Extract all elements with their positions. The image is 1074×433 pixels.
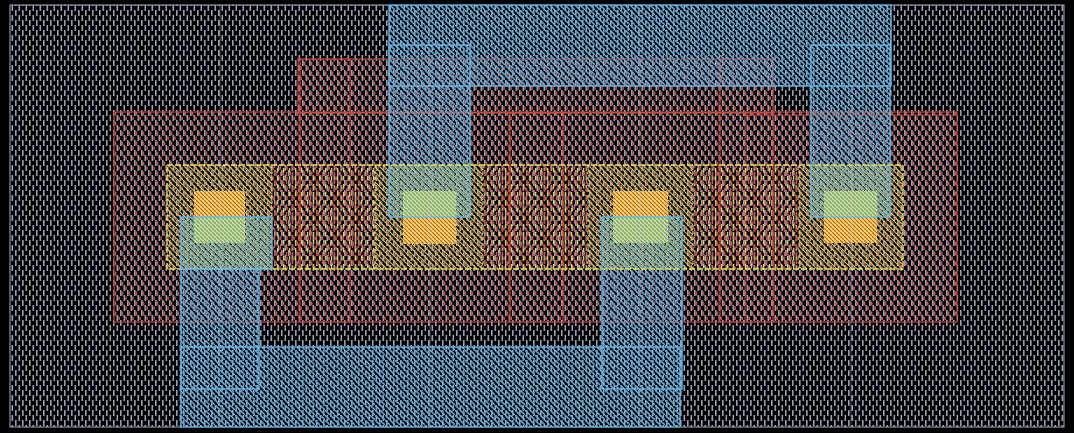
layout-svg[interactable] — [0, 0, 1074, 433]
layout-canvas[interactable] — [0, 0, 1074, 433]
gate-segment-2[interactable] — [483, 165, 588, 269]
gate-segment-3[interactable] — [693, 165, 799, 269]
gate-segment-1[interactable] — [272, 165, 375, 269]
